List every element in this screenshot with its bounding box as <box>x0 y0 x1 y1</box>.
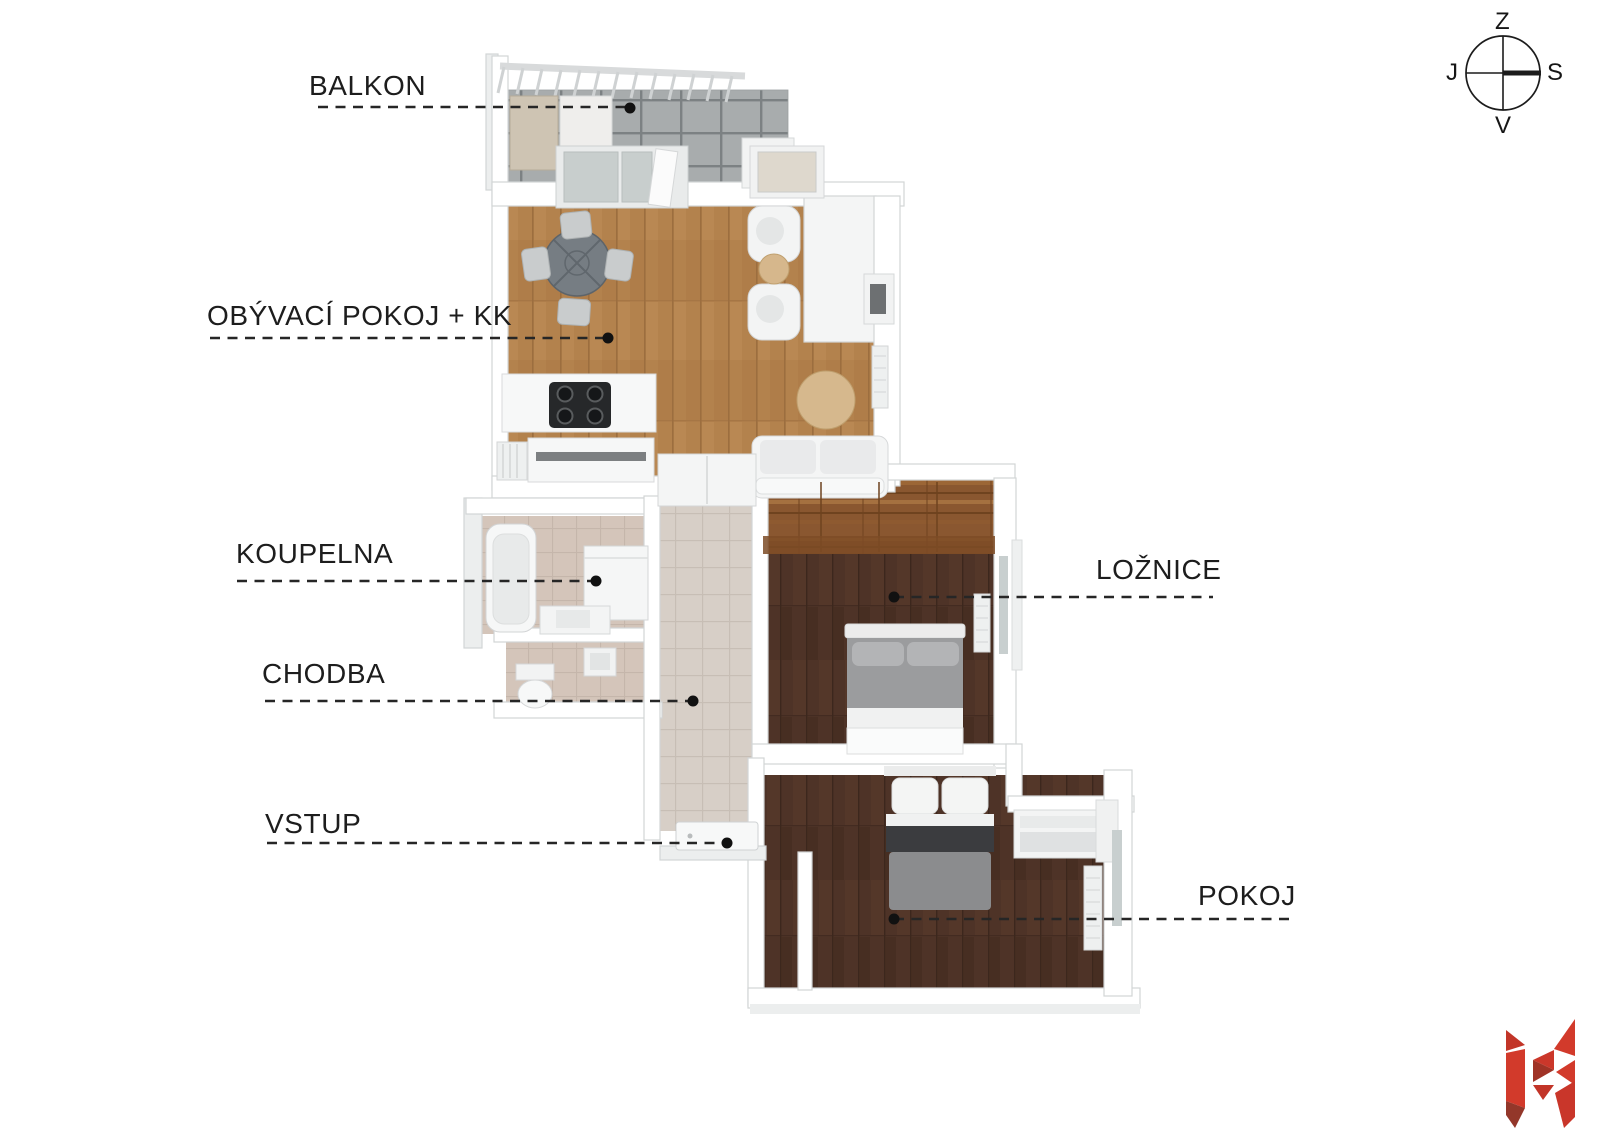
balcony-door <box>556 146 688 208</box>
compass-letter-west-label: J <box>1446 61 1458 85</box>
corridor-floor <box>658 505 754 831</box>
room-label-loznice: LOŽNICE <box>1096 556 1222 584</box>
kitchen-island <box>502 374 656 432</box>
second-room-window <box>1112 830 1122 926</box>
bedroom-window-sill <box>1012 540 1022 670</box>
balcony-railing <box>500 66 745 76</box>
floor-plan-page: BALKON OBÝVACÍ POKOJ + KK KOUPELNA CHODB… <box>0 0 1599 1133</box>
living-radiator <box>872 346 888 408</box>
compass-icon <box>1466 36 1541 110</box>
kitchen-radiator <box>497 442 527 480</box>
compass-letter-south-label: V <box>1495 114 1511 138</box>
room-label-vstup: VSTUP <box>265 810 361 838</box>
tv-unit <box>864 274 894 324</box>
dining-table <box>544 230 610 296</box>
second-room-radiator <box>1084 866 1102 950</box>
bedroom-window <box>999 556 1008 654</box>
compass-letter-north-label: Z <box>1495 10 1510 34</box>
kitchen-counter <box>528 438 654 482</box>
toilet-tank <box>516 664 554 680</box>
toilet <box>518 680 552 708</box>
bedroom-bed <box>845 624 965 754</box>
side-table <box>759 254 789 284</box>
compass-letter-east-label: S <box>1547 61 1563 85</box>
bedroom-radiator <box>974 594 990 652</box>
room-label-koupelna: KOUPELNA <box>236 540 393 568</box>
room-label-obyvaci-pokoj-kk: OBÝVACÍ POKOJ + KK <box>207 302 512 330</box>
sofa <box>752 436 888 498</box>
room-label-pokoj: POKOJ <box>1198 882 1296 910</box>
brand-logo-icon <box>1506 1019 1575 1128</box>
living-window-bay <box>750 146 824 198</box>
room-label-balkon: BALKON <box>309 72 426 100</box>
coffee-table <box>797 371 855 429</box>
room-label-chodba: CHODBA <box>262 660 385 688</box>
